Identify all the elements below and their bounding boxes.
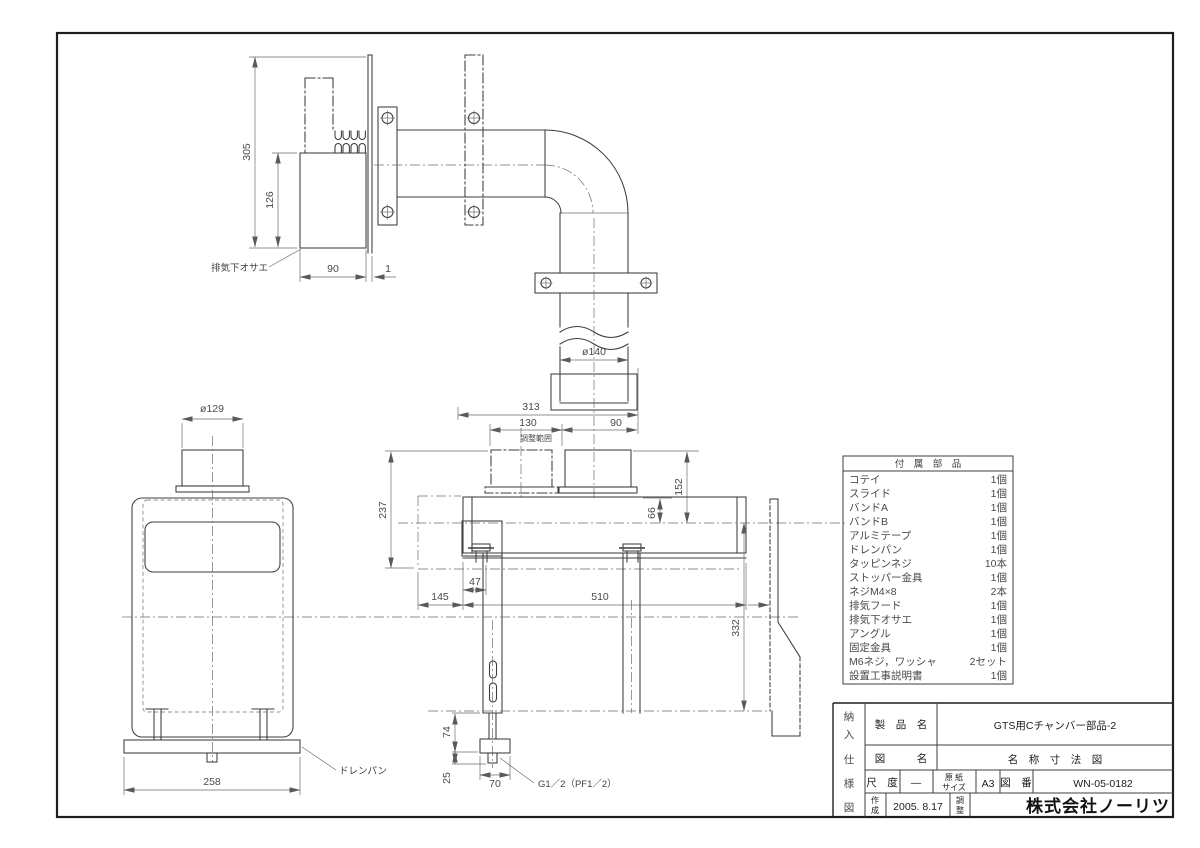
exhaust-collar <box>565 450 631 487</box>
product-name: GTS用Cチャンバー部品-2 <box>994 719 1117 732</box>
doc-type-char: 納 <box>844 710 855 723</box>
created-label: 成 <box>871 805 879 815</box>
dim-90-side: 90 <box>327 263 339 275</box>
part-qty: 1個 <box>991 487 1007 500</box>
part-qty: 1個 <box>991 473 1007 486</box>
dim-130: 130 <box>519 417 537 429</box>
pipe-band <box>535 273 657 293</box>
parts-table-title: 付 属 部 品 <box>895 458 962 470</box>
part-name: ドレンパン <box>849 544 902 556</box>
scale-value: ― <box>911 777 922 789</box>
product-label: 製 品 名 <box>875 718 928 731</box>
label-drain-thread: G1／2（PF1／2） <box>538 778 617 790</box>
part-qty: 1個 <box>991 669 1007 682</box>
parts-table: 付 属 部 品 コテイ1個 スライド1個 バンドA1個 バンドB1個 アルミテー… <box>843 456 1013 684</box>
dim-25: 25 <box>441 772 453 784</box>
dim-126: 126 <box>264 191 276 209</box>
pipe-slot <box>490 683 497 702</box>
part-name: コテイ <box>849 474 881 486</box>
paper-size-label: 原 紙 <box>945 772 963 782</box>
chamber-body <box>463 497 746 553</box>
doc-type-vertical: 納 入 仕 様 図 <box>844 710 855 814</box>
part-name: アングル <box>849 627 891 640</box>
dim-332: 332 <box>730 619 742 637</box>
part-qty: 10本 <box>985 557 1008 570</box>
part-qty: 2セット <box>970 656 1007 668</box>
part-name: 排気下オサエ <box>849 613 912 626</box>
drain-pan <box>124 740 300 753</box>
dim-66: 66 <box>646 507 658 519</box>
part-qty: 1個 <box>991 571 1007 584</box>
part-name: 設置工事説明書 <box>849 669 923 682</box>
dim-313: 313 <box>522 401 540 413</box>
dim-47: 47 <box>469 576 481 588</box>
part-qty: 1個 <box>991 599 1007 612</box>
dim-145: 145 <box>431 591 449 603</box>
part-name: バンドB <box>849 516 888 528</box>
created-date: 2005. 8.17 <box>893 801 943 813</box>
dim-70: 70 <box>489 778 501 790</box>
drawing-name-label: 図 名 <box>875 752 928 765</box>
part-qty: 1個 <box>991 501 1007 514</box>
dim-90-top: 90 <box>610 417 622 429</box>
title-block: 納 入 仕 様 図 製 品 名 GTS用Cチャンバー部品-2 図 名 名 称 寸… <box>833 703 1173 817</box>
doc-type-char: 入 <box>844 729 855 741</box>
part-name: 固定金具 <box>849 641 891 654</box>
part-qty: 1個 <box>991 543 1007 556</box>
drawing-number-label: 図 番 <box>1000 777 1032 789</box>
dim-305: 305 <box>241 143 253 161</box>
part-name: タッピンネジ <box>849 558 912 570</box>
part-name: アルミテープ <box>849 530 912 542</box>
parts-table-rows: コテイ1個 スライド1個 バンドA1個 バンドB1個 アルミテープ1個 ドレンパ… <box>849 473 1007 682</box>
part-qty: 1個 <box>991 613 1007 626</box>
part-name: M6ネジ，ワッシャ <box>849 656 937 668</box>
dim-dia140: ø140 <box>582 346 606 358</box>
drawing-sheet: 305 126 90 1 排気下オサエ <box>0 0 1200 848</box>
drawing-number-value: WN-05-0182 <box>1073 778 1133 790</box>
part-name: 排気フード <box>849 599 902 612</box>
bolt-hole-icon <box>540 277 653 290</box>
part-qty: 1個 <box>991 529 1007 542</box>
part-qty: 2本 <box>991 585 1008 598</box>
view-elbow-pipe: ø140 <box>374 55 657 500</box>
adjust-label: 調 <box>956 795 964 805</box>
drain-nipple <box>207 753 217 762</box>
part-name: ネジM4×8 <box>849 586 897 598</box>
dim-258: 258 <box>203 776 221 788</box>
view-exhaust-holder-side: 305 126 90 1 排気下オサエ <box>211 55 397 282</box>
doc-type-char: 図 <box>844 802 855 814</box>
view-chamber-front: ø129 258 ドレンパン <box>124 403 387 795</box>
part-qty: 1個 <box>991 641 1007 654</box>
view-chamber-side: 313 130 調整範囲 90 152 66 <box>122 368 845 790</box>
part-name: バンドA <box>849 502 888 514</box>
dim-74: 74 <box>441 726 453 738</box>
drawing-canvas: 305 126 90 1 排気下オサエ <box>0 0 1200 848</box>
paper-size-value: A3 <box>982 778 995 790</box>
paper-size-label: サイズ <box>942 782 966 792</box>
slide-band <box>465 55 483 225</box>
part-qty: 1個 <box>991 627 1007 640</box>
dim-510: 510 <box>591 591 609 603</box>
part-name: スライド <box>849 488 891 500</box>
spring-clips <box>335 131 365 152</box>
doc-type-char: 様 <box>844 777 855 790</box>
created-label: 作 <box>871 795 879 805</box>
pipe-slot <box>490 661 497 678</box>
dim-152: 152 <box>673 478 685 496</box>
label-drain-pan: ドレンパン <box>339 766 387 777</box>
dim-dia129: ø129 <box>200 403 224 415</box>
intake-collar <box>491 450 552 487</box>
drain-nut <box>480 739 510 753</box>
dim-1: 1 <box>385 263 391 275</box>
doc-type-char: 仕 <box>844 753 855 766</box>
label-exhaust-holder: 排気下オサエ <box>211 262 268 274</box>
wall-bracket <box>770 499 800 736</box>
company-name: 株式会社ノーリツ <box>1026 796 1170 816</box>
drawing-name: 名 称 寸 法 図 <box>1008 753 1103 766</box>
adjust-label: 整 <box>956 805 964 815</box>
dim-237: 237 <box>377 501 389 519</box>
exhaust-holder-body <box>300 153 366 248</box>
scale-label: 尺 度 <box>866 776 898 789</box>
part-name: ストッパー金具 <box>849 571 923 584</box>
label-adjust-range: 調整範囲 <box>520 433 552 443</box>
part-qty: 1個 <box>991 515 1007 528</box>
legs <box>146 709 274 740</box>
